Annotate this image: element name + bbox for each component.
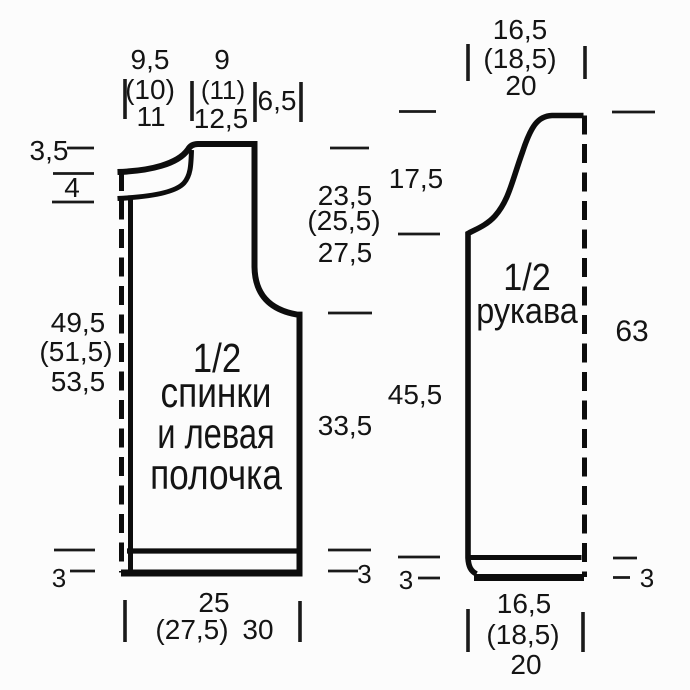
svg-text:53,5: 53,5: [51, 366, 106, 397]
svg-text:(11): (11): [201, 75, 245, 105]
svg-text:20: 20: [510, 649, 541, 680]
svg-text:3: 3: [640, 563, 654, 593]
svg-text:27,5: 27,5: [318, 237, 373, 268]
svg-text:3,5: 3,5: [30, 135, 69, 166]
svg-text:(25,5): (25,5): [307, 205, 380, 236]
svg-text:3: 3: [52, 563, 66, 593]
svg-text:49,5: 49,5: [51, 307, 106, 338]
svg-text:(18,5): (18,5): [486, 619, 559, 650]
svg-text:45,5: 45,5: [388, 379, 443, 410]
svg-text:полочка: полочка: [150, 451, 282, 499]
svg-text:12,5: 12,5: [194, 103, 249, 134]
svg-text:30: 30: [242, 614, 273, 645]
svg-text:3: 3: [399, 565, 413, 595]
svg-text:6,5: 6,5: [258, 85, 297, 116]
svg-text:17,5: 17,5: [389, 163, 444, 194]
svg-text:63: 63: [615, 315, 648, 348]
svg-text:16,5: 16,5: [493, 14, 548, 45]
svg-text:9: 9: [214, 44, 230, 75]
svg-text:33,5: 33,5: [318, 410, 373, 441]
svg-text:9,5: 9,5: [131, 44, 170, 75]
svg-text:(27,5): (27,5): [155, 614, 228, 645]
svg-text:рукава: рукава: [476, 291, 578, 331]
svg-text:20: 20: [505, 70, 536, 101]
svg-text:3: 3: [357, 559, 371, 589]
svg-text:11: 11: [136, 101, 165, 132]
svg-text:(51,5): (51,5): [39, 336, 112, 367]
svg-text:4: 4: [64, 172, 80, 203]
svg-text:16,5: 16,5: [497, 588, 552, 619]
